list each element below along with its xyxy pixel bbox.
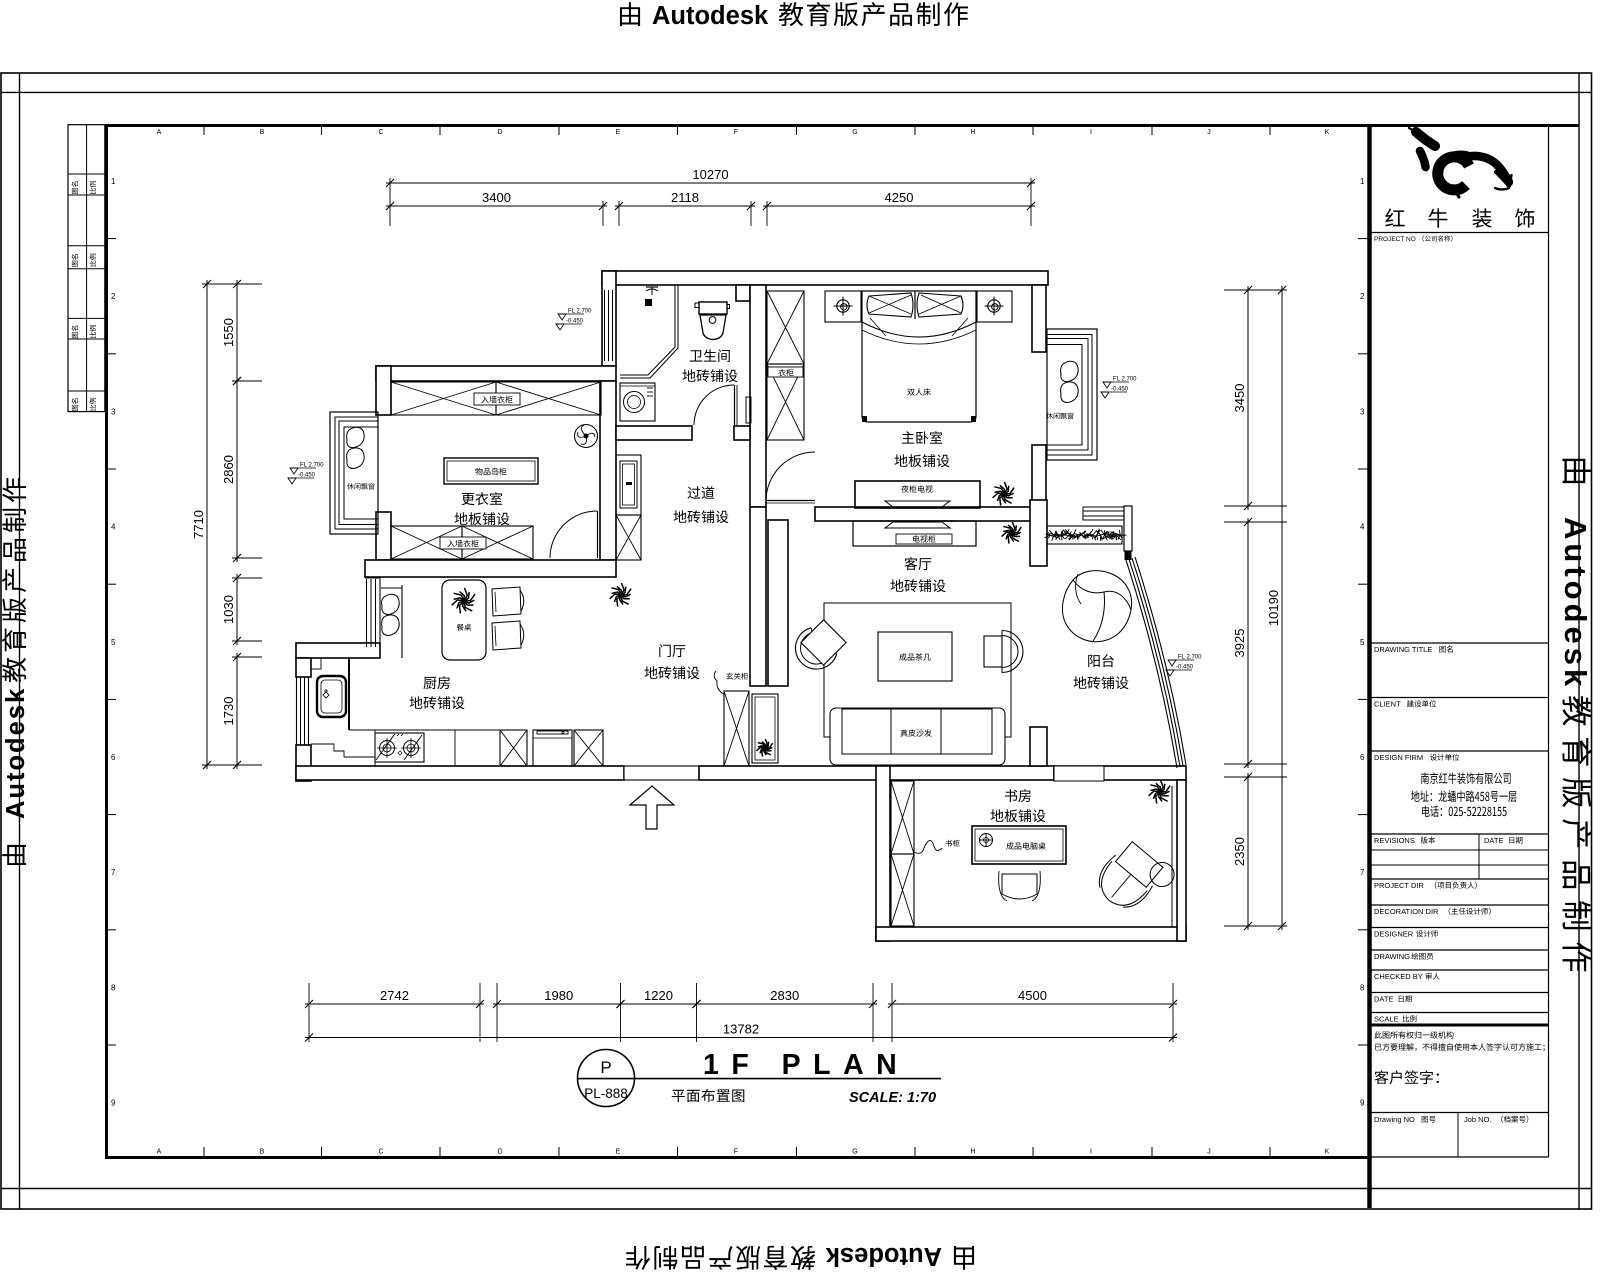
svg-text:2: 2 [111,292,116,301]
svg-text:3: 3 [1360,407,1365,416]
svg-text:PROJECT NO: PROJECT NO [1374,236,1416,243]
svg-text:PL-888: PL-888 [584,1086,628,1101]
svg-text:-0.450: -0.450 [1176,665,1194,671]
svg-text:3450: 3450 [1232,384,1247,413]
svg-text:G: G [852,129,857,136]
svg-text:DESIGN FIRM: DESIGN FIRM [1374,753,1423,762]
svg-text:3: 3 [111,407,116,416]
svg-text:1F PLAN: 1F PLAN [703,1049,909,1081]
svg-text:B: B [260,1149,265,1156]
svg-text:A: A [157,129,162,136]
svg-text:2118: 2118 [671,190,699,205]
svg-text:D: D [497,129,502,136]
svg-text:CHECKED BY: CHECKED BY [1374,972,1423,981]
svg-text:1220: 1220 [644,988,673,1003]
svg-text:2830: 2830 [770,988,799,1003]
svg-text:3400: 3400 [482,190,511,205]
svg-text:7710: 7710 [191,510,206,539]
svg-text:-0.450: -0.450 [566,319,584,325]
svg-text:Autodesk: Autodesk [1558,517,1593,690]
svg-text:2: 2 [1360,292,1365,301]
svg-text:FL 2.700: FL 2.700 [300,463,324,469]
svg-text:-0.450: -0.450 [298,473,316,479]
svg-text:F: F [734,1149,738,1156]
svg-text:5: 5 [111,638,116,647]
svg-text:Autodesk: Autodesk [652,2,769,30]
svg-text:Drawing NO: Drawing NO [1374,1115,1415,1124]
svg-text:2742: 2742 [380,988,409,1003]
svg-text:1550: 1550 [221,318,236,347]
svg-text:C: C [378,129,383,136]
svg-text:9: 9 [1360,1099,1365,1108]
svg-text:1030: 1030 [221,595,236,624]
svg-text:FL 2.700: FL 2.700 [1113,377,1137,383]
svg-text:1: 1 [1360,177,1365,186]
svg-text:3925: 3925 [1232,629,1247,658]
svg-text:B: B [260,129,265,136]
svg-text:DRAWING: DRAWING [1374,952,1410,961]
svg-text:CLIENT: CLIENT [1374,700,1401,709]
svg-text:SCALE: SCALE [1374,1015,1399,1024]
svg-text:7: 7 [1360,868,1365,877]
svg-text:Autodesk: Autodesk [2,687,30,819]
svg-text:4500: 4500 [1018,988,1047,1003]
svg-text:J: J [1207,1149,1211,1156]
svg-text:2350: 2350 [1232,837,1247,866]
svg-text:6: 6 [1360,753,1365,762]
svg-text:Autodesk: Autodesk [825,1242,942,1270]
svg-text:REVISIONS: REVISIONS [1374,836,1415,845]
svg-text:G: G [852,1149,857,1156]
svg-text:FL 2.700: FL 2.700 [1178,655,1202,661]
svg-text:6: 6 [111,753,116,762]
svg-text:FL 2.700: FL 2.700 [568,309,592,315]
svg-text:C: C [378,1149,383,1156]
svg-text:4250: 4250 [885,190,914,205]
svg-text:H: H [970,129,975,136]
svg-text:I: I [1090,1149,1092,1156]
svg-text:P: P [600,1058,611,1077]
svg-text:J: J [1207,129,1211,136]
svg-text:Job NO.: Job NO. [1464,1115,1492,1124]
svg-text:K: K [1325,1149,1330,1156]
svg-text:2860: 2860 [221,455,236,484]
svg-text:13782: 13782 [723,1022,759,1037]
svg-text:DATE: DATE [1374,995,1393,1004]
svg-text:D: D [497,1149,502,1156]
svg-text:1: 1 [111,177,116,186]
svg-text:I: I [1090,129,1092,136]
svg-text:DESIGNER: DESIGNER [1374,930,1414,939]
svg-text:7: 7 [111,868,116,877]
svg-text:-0.450: -0.450 [1111,387,1129,393]
svg-text:DRAWING TITLE: DRAWING TITLE [1374,645,1432,654]
svg-text:10270: 10270 [692,167,728,182]
svg-text:1980: 1980 [544,988,573,1003]
svg-text:8: 8 [111,983,116,992]
svg-text:1730: 1730 [221,697,236,726]
svg-text:A: A [157,1149,162,1156]
svg-text:PROJECT DIR: PROJECT DIR [1374,881,1424,890]
svg-text:9: 9 [111,1099,116,1108]
svg-text:DECORATION DIR: DECORATION DIR [1374,907,1439,916]
svg-text:E: E [616,129,621,136]
svg-text:K: K [1325,129,1330,136]
svg-text:H: H [970,1149,975,1156]
svg-text:10190: 10190 [1266,590,1281,626]
svg-text:F: F [734,129,738,136]
svg-text:E: E [616,1149,621,1156]
svg-text:8: 8 [1360,983,1365,992]
svg-text:SCALE: 1:70: SCALE: 1:70 [849,1090,936,1106]
svg-text:4: 4 [1360,523,1365,532]
svg-text:5: 5 [1360,638,1365,647]
svg-text:DATE: DATE [1484,836,1503,845]
svg-text:4: 4 [111,523,116,532]
